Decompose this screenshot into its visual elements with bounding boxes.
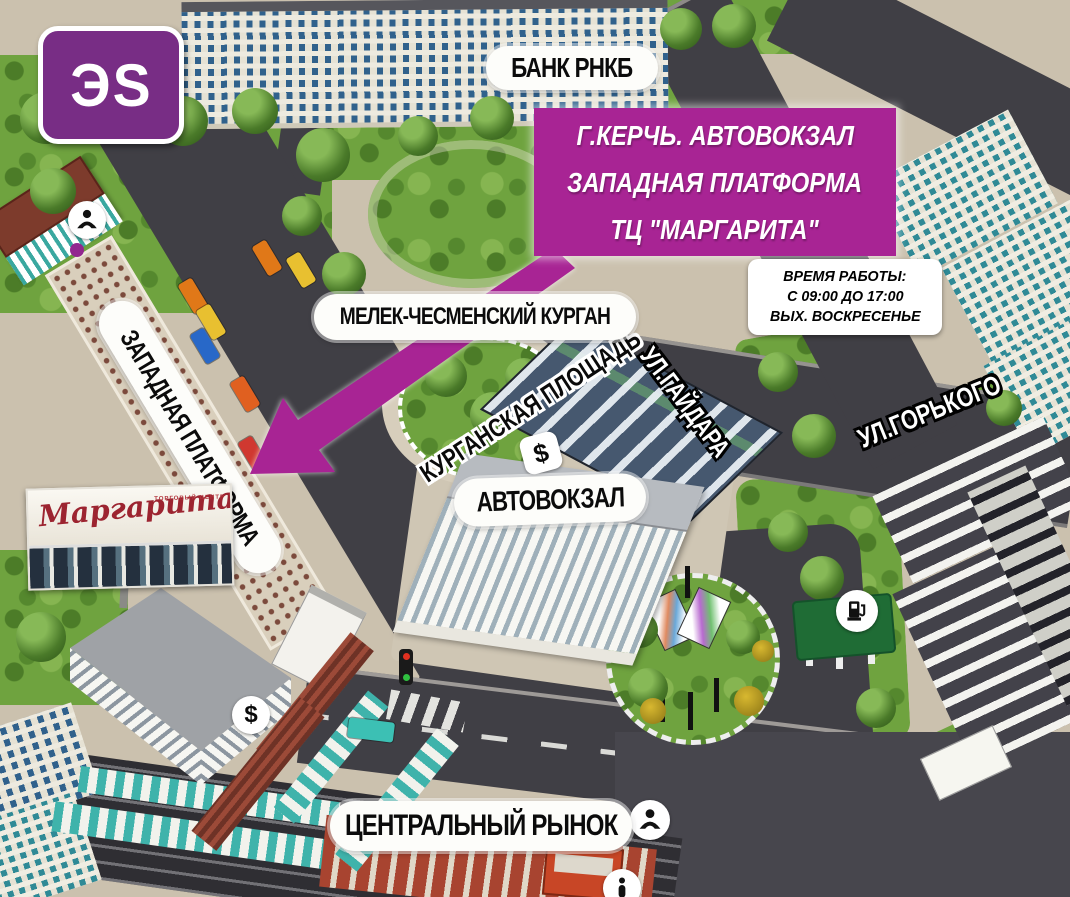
brand-logo-text: ЭS bbox=[70, 51, 152, 120]
bank-label: БАНК РНКБ bbox=[486, 46, 658, 90]
traffic-light-icon bbox=[399, 649, 413, 685]
tree bbox=[660, 8, 702, 50]
info-glyph bbox=[607, 873, 637, 897]
banner-line-1: Г.КЕРЧЬ. АВТОВОКЗАЛ bbox=[576, 112, 854, 159]
working-hours-box: ВРЕМЯ РАБОТЫ: С 09:00 ДО 17:00 ВЫХ. ВОСК… bbox=[748, 259, 942, 335]
tree bbox=[470, 96, 514, 140]
person-glyph bbox=[634, 804, 666, 836]
person-glyph bbox=[72, 205, 102, 235]
banner-line-3: ТЦ "МАРГАРИТА" bbox=[611, 206, 819, 253]
traffic-light-red bbox=[403, 653, 410, 660]
truck-cab bbox=[554, 854, 613, 877]
storefront-facade: Маргарита ТОРГОВЫЙ ЦЕНТР bbox=[28, 485, 231, 545]
storefront-photo-inset: Маргарита ТОРГОВЫЙ ЦЕНТР bbox=[26, 483, 235, 590]
pointer-arrow bbox=[245, 248, 585, 483]
title-banner: Г.КЕРЧЬ. АВТОВОКЗАЛ ЗАПАДНАЯ ПЛАТФОРМА Т… bbox=[534, 108, 896, 256]
melek-kurgan-label-text: МЕЛЕК-ЧЕСМЕНСКИЙ КУРГАН bbox=[340, 303, 610, 331]
fuel-station-icon bbox=[836, 590, 878, 632]
bush bbox=[752, 640, 774, 662]
info-icon bbox=[603, 869, 641, 897]
traffic-light-green bbox=[403, 674, 410, 681]
bush bbox=[734, 686, 764, 716]
tree bbox=[282, 196, 322, 236]
melek-kurgan-label: МЕЛЕК-ЧЕСМЕНСКИЙ КУРГАН bbox=[314, 294, 636, 340]
tree bbox=[712, 4, 756, 48]
monument-leg bbox=[688, 692, 693, 730]
storefront-windows bbox=[29, 540, 232, 590]
bus-stop-icon bbox=[68, 201, 106, 239]
storefront-sign-text: Маргарита bbox=[37, 483, 234, 533]
monument-leg bbox=[714, 678, 719, 712]
hours-line-2: С 09:00 ДО 17:00 bbox=[787, 287, 903, 307]
bus-stop-icon bbox=[630, 800, 670, 840]
tree bbox=[398, 116, 438, 156]
avtovokzal-label: АВТОВОКЗАЛ bbox=[453, 473, 647, 528]
central-market-label: ЦЕНТРАЛЬНЫЙ РЫНОК bbox=[330, 801, 632, 851]
map-canvas: $ $ БАНК РНКБ МЕЛЕК-ЧЕСМЕНСКИЙ КУРГАН АВ… bbox=[0, 0, 1070, 897]
central-market-label-text: ЦЕНТРАЛЬНЫЙ РЫНОК bbox=[345, 809, 617, 843]
tree bbox=[800, 556, 844, 600]
pointer-arrow-shape bbox=[245, 248, 585, 483]
magenta-dot bbox=[70, 243, 84, 257]
tree bbox=[768, 512, 808, 552]
tree bbox=[30, 168, 76, 214]
bush bbox=[640, 698, 666, 724]
banner-line-2: ЗАПАДНАЯ ПЛАТФОРМА bbox=[567, 159, 862, 206]
cash-desk-icon: $ bbox=[232, 696, 270, 734]
hours-line-1: ВРЕМЯ РАБОТЫ: bbox=[783, 267, 906, 287]
tree bbox=[792, 414, 836, 458]
fuel-pump-glyph bbox=[841, 595, 873, 627]
brand-logo: ЭS bbox=[38, 26, 184, 144]
tree bbox=[232, 88, 278, 134]
hours-line-3: ВЫХ. ВОСКРЕСЕНЬЕ bbox=[770, 307, 921, 327]
tree bbox=[758, 352, 798, 392]
avtovokzal-label-text: АВТОВОКЗАЛ bbox=[476, 481, 625, 518]
bank-label-text: БАНК РНКБ bbox=[511, 52, 632, 84]
tree bbox=[856, 688, 896, 728]
tree bbox=[296, 128, 350, 182]
monument-pole bbox=[685, 566, 690, 598]
cash-symbol: $ bbox=[244, 701, 257, 729]
